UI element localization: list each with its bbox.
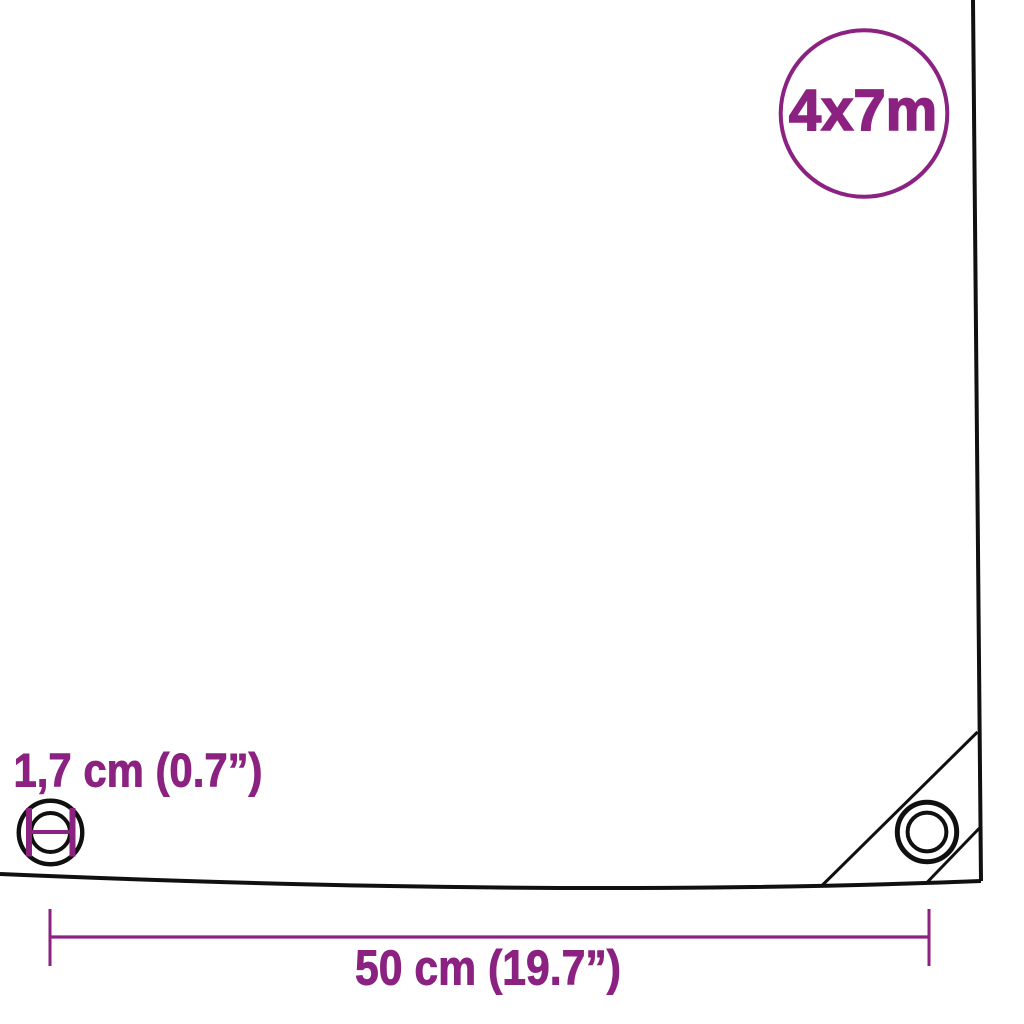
svg-text:1,7 cm (0.7”): 1,7 cm (0.7”) xyxy=(14,745,263,798)
svg-text:4x7m: 4x7m xyxy=(789,78,937,143)
svg-text:50 cm (19.7”): 50 cm (19.7”) xyxy=(355,942,621,996)
